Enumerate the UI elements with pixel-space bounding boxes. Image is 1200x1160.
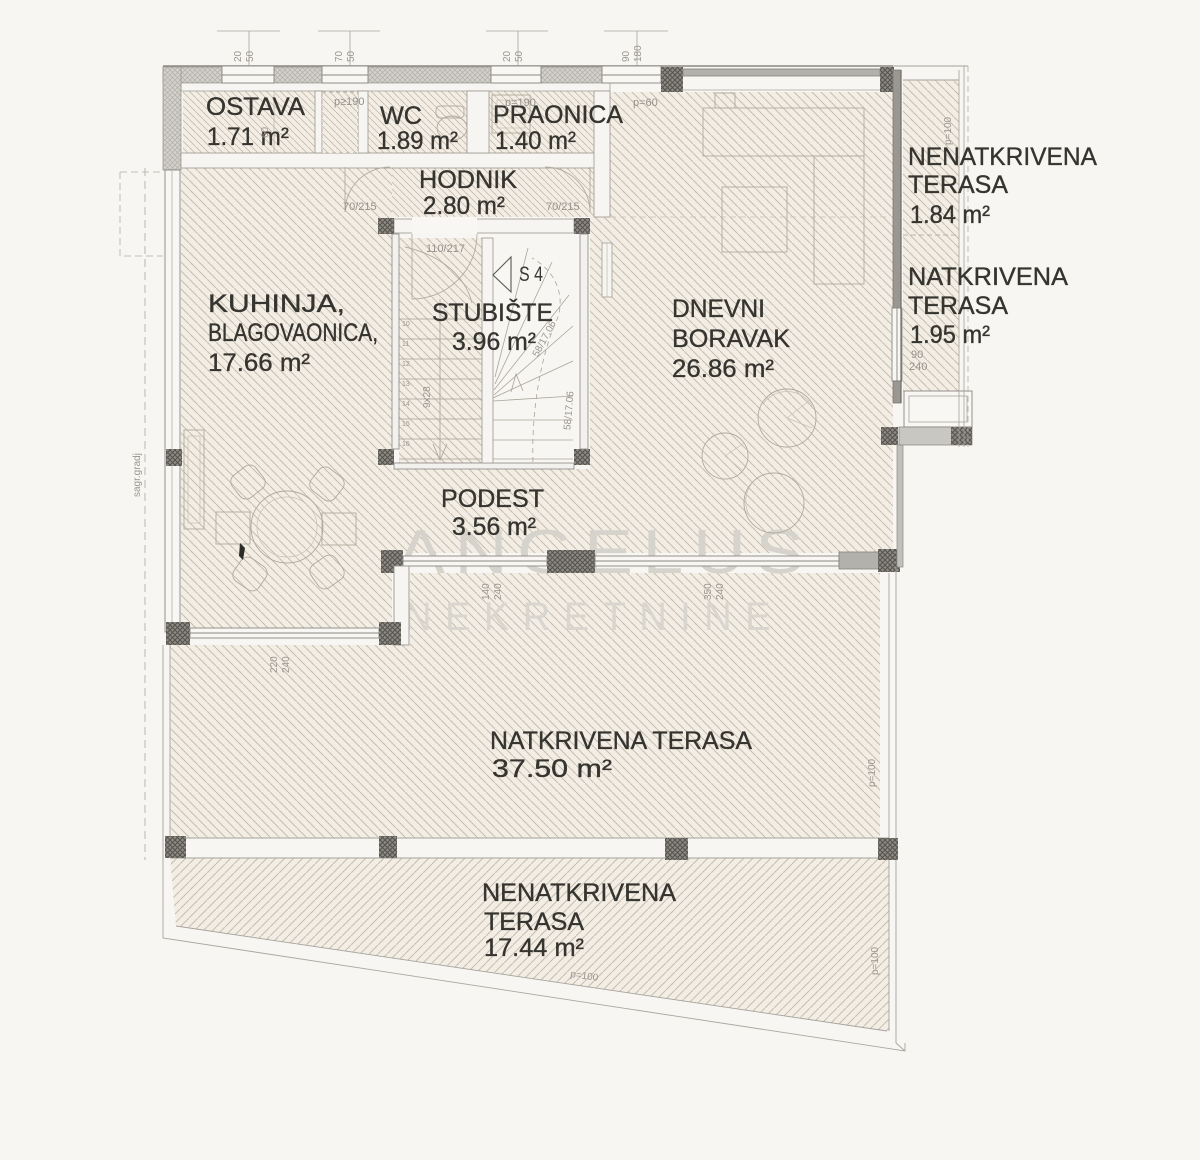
svg-text:12: 12 (402, 361, 410, 368)
svg-text:220: 220 (269, 656, 280, 673)
svg-text:60: 60 (260, 126, 271, 138)
svg-text:90: 90 (911, 349, 923, 361)
svg-text:BLAGOVAONICA,: BLAGOVAONICA, (208, 319, 378, 347)
svg-text:PODEST: PODEST (441, 485, 544, 513)
svg-text:p=100: p=100 (867, 758, 878, 787)
svg-text:3.56 m²: 3.56 m² (452, 513, 536, 541)
svg-text:p=190: p=190 (505, 97, 536, 109)
svg-text:140: 140 (481, 583, 492, 600)
svg-text:1.89 m²: 1.89 m² (377, 127, 458, 155)
svg-text:70: 70 (334, 50, 345, 62)
svg-text:STUBIŠTE: STUBIŠTE (432, 298, 553, 327)
svg-text:p=60: p=60 (633, 97, 658, 109)
svg-text:50: 50 (245, 50, 256, 62)
svg-text:1.95 m²: 1.95 m² (910, 321, 990, 349)
svg-text:50: 50 (514, 50, 525, 62)
svg-text:NENATKRIVENA: NENATKRIVENA (908, 143, 1097, 171)
svg-text:350: 350 (703, 583, 714, 600)
svg-text:240: 240 (281, 656, 292, 673)
svg-text:17.66 m²: 17.66 m² (208, 349, 310, 377)
svg-text:NEKRETNINE: NEKRETNINE (404, 595, 784, 639)
svg-text:WC: WC (380, 102, 422, 130)
svg-text:110/217: 110/217 (426, 243, 465, 255)
svg-text:p≥190: p≥190 (334, 96, 365, 108)
svg-text:KUHINJA,: KUHINJA, (208, 290, 345, 318)
svg-text:10: 10 (402, 321, 410, 328)
svg-text:DNEVNI: DNEVNI (672, 295, 765, 323)
svg-text:240: 240 (909, 361, 927, 373)
svg-text:15: 15 (402, 421, 410, 428)
svg-text:HODNIK: HODNIK (419, 166, 517, 194)
svg-text:14: 14 (402, 401, 410, 408)
svg-text:26.86 m²: 26.86 m² (672, 355, 774, 383)
svg-text:20: 20 (502, 50, 513, 62)
svg-text:9x28: 9x28 (422, 386, 433, 408)
svg-text:NENATKRIVENA: NENATKRIVENA (482, 879, 676, 907)
svg-text:240: 240 (715, 583, 726, 600)
svg-text:70/215: 70/215 (546, 201, 580, 213)
svg-text:p=100: p=100 (870, 946, 881, 975)
svg-text:1.71 m²: 1.71 m² (207, 123, 289, 151)
svg-text:13: 13 (402, 381, 410, 388)
svg-text:NATKRIVENA: NATKRIVENA (908, 263, 1068, 291)
svg-text:37.50 m²: 37.50 m² (492, 755, 612, 783)
svg-text:p=100: p=100 (943, 116, 954, 145)
svg-text:20: 20 (233, 50, 244, 62)
svg-text:TERASA: TERASA (484, 908, 584, 936)
svg-text:TERASA: TERASA (908, 171, 1008, 199)
svg-text:240: 240 (493, 583, 504, 600)
svg-text:1.84 m²: 1.84 m² (910, 201, 990, 229)
svg-text:BORAVAK: BORAVAK (672, 325, 790, 353)
svg-text:50: 50 (346, 50, 357, 62)
svg-text:180: 180 (633, 45, 644, 62)
svg-text:70/215: 70/215 (343, 201, 377, 213)
svg-text:1.40 m²: 1.40 m² (495, 127, 576, 155)
svg-text:S 4: S 4 (519, 263, 543, 286)
svg-text:NATKRIVENA TERASA: NATKRIVENA TERASA (490, 727, 752, 755)
svg-text:3.96 m²: 3.96 m² (452, 328, 536, 356)
svg-text:17.44 m²: 17.44 m² (484, 934, 584, 962)
svg-text:TERASA: TERASA (908, 292, 1008, 320)
svg-text:11: 11 (402, 341, 409, 348)
svg-text:sagr.gradj: sagr.gradj (132, 453, 143, 497)
svg-text:2.80 m²: 2.80 m² (423, 192, 505, 220)
svg-text:90: 90 (621, 50, 632, 62)
svg-text:OSTAVA: OSTAVA (206, 93, 305, 121)
svg-text:16: 16 (402, 441, 410, 448)
